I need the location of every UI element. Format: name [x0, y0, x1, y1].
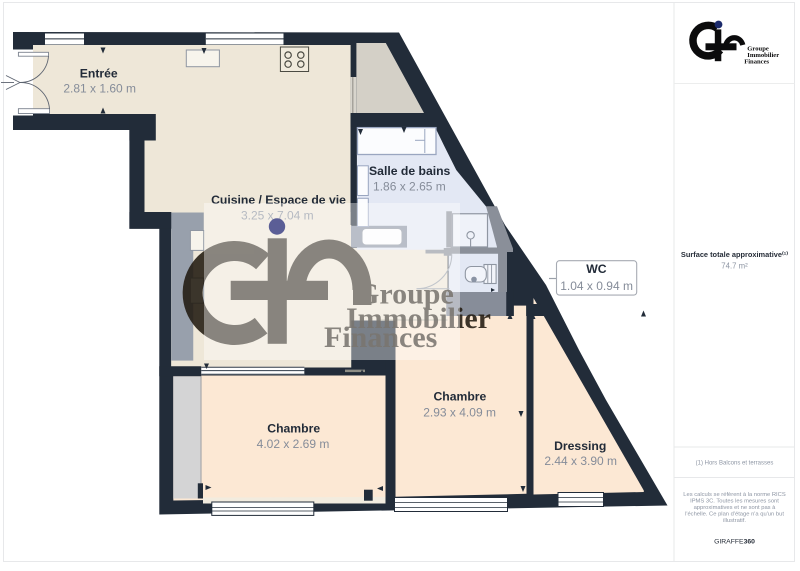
- svg-text:1.04 x 0.94 m: 1.04 x 0.94 m: [560, 279, 633, 293]
- svg-text:Les calculs se réfèrent à la n: Les calculs se réfèrent à la norme RICS: [683, 492, 786, 498]
- svg-text:74.7 m²: 74.7 m²: [721, 262, 748, 271]
- svg-text:4.02 x 2.69 m: 4.02 x 2.69 m: [257, 437, 330, 451]
- svg-text:2.44 x 3.90 m: 2.44 x 3.90 m: [544, 454, 617, 468]
- svg-text:Salle de bains: Salle de bains: [369, 164, 451, 178]
- svg-text:Chambre: Chambre: [433, 390, 486, 404]
- svg-text:1.86 x 2.65 m: 1.86 x 2.65 m: [373, 179, 446, 193]
- svg-text:l'échelle. Ce plan d'étage n'a: l'échelle. Ce plan d'étage n'a qu'un but: [685, 512, 784, 518]
- svg-text:2.81 x 1.60 m: 2.81 x 1.60 m: [63, 82, 136, 96]
- svg-text:IPMS 3C. Toutes les mesures so: IPMS 3C. Toutes les mesures sont: [690, 499, 779, 505]
- svg-text:Entrée: Entrée: [80, 67, 118, 81]
- svg-text:Dressing: Dressing: [554, 439, 606, 453]
- svg-text:WC: WC: [586, 262, 607, 276]
- svg-text:Surface totale approximative⁽¹: Surface totale approximative⁽¹⁾: [681, 250, 788, 259]
- svg-text:Chambre: Chambre: [267, 422, 320, 436]
- svg-text:(1) Hors Balcons et terrasses: (1) Hors Balcons et terrasses: [696, 461, 774, 467]
- svg-text:illustratif.: illustratif.: [723, 518, 746, 524]
- svg-text:approximatives et ne sont pas: approximatives et ne sont pas à: [694, 505, 777, 511]
- svg-text:2.93 x 4.09 m: 2.93 x 4.09 m: [423, 405, 496, 419]
- svg-text:GIRAFFE360: GIRAFFE360: [714, 539, 755, 546]
- svg-text:Finances: Finances: [744, 59, 769, 66]
